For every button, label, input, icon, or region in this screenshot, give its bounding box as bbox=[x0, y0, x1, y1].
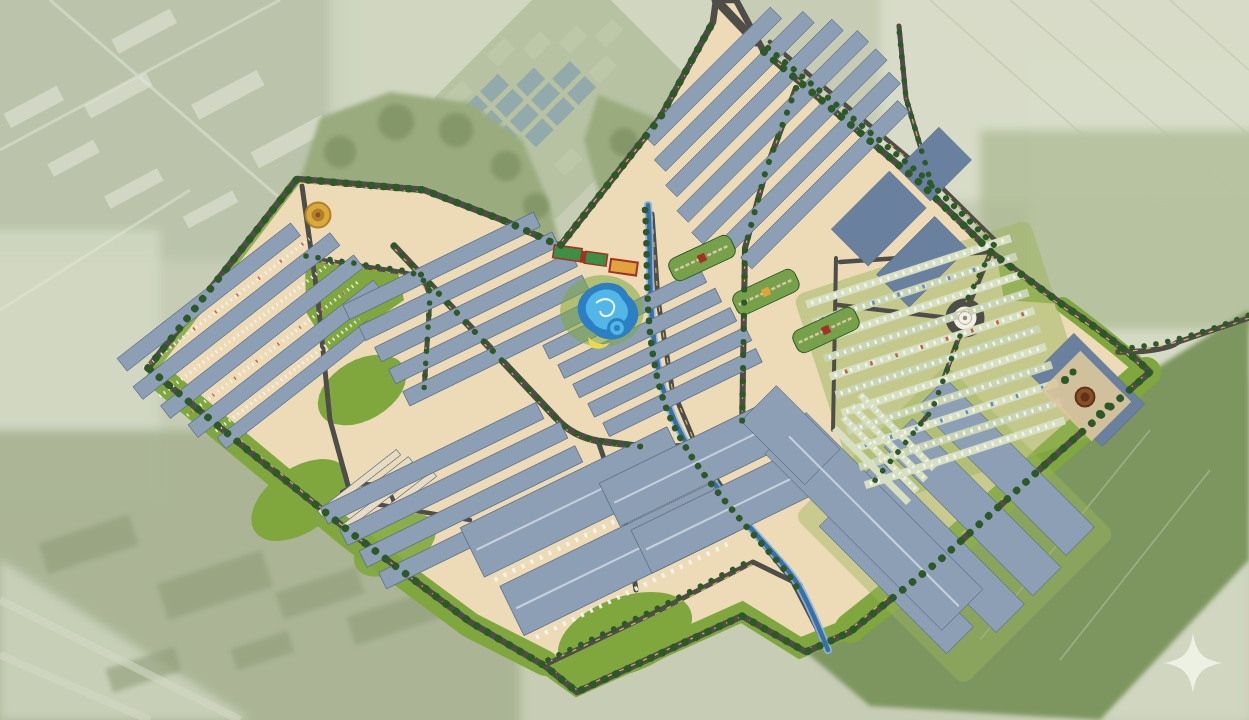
master-plan-canvas bbox=[0, 0, 1249, 720]
roundabout-monument bbox=[959, 312, 972, 325]
golden-entry-plaza bbox=[306, 203, 331, 228]
